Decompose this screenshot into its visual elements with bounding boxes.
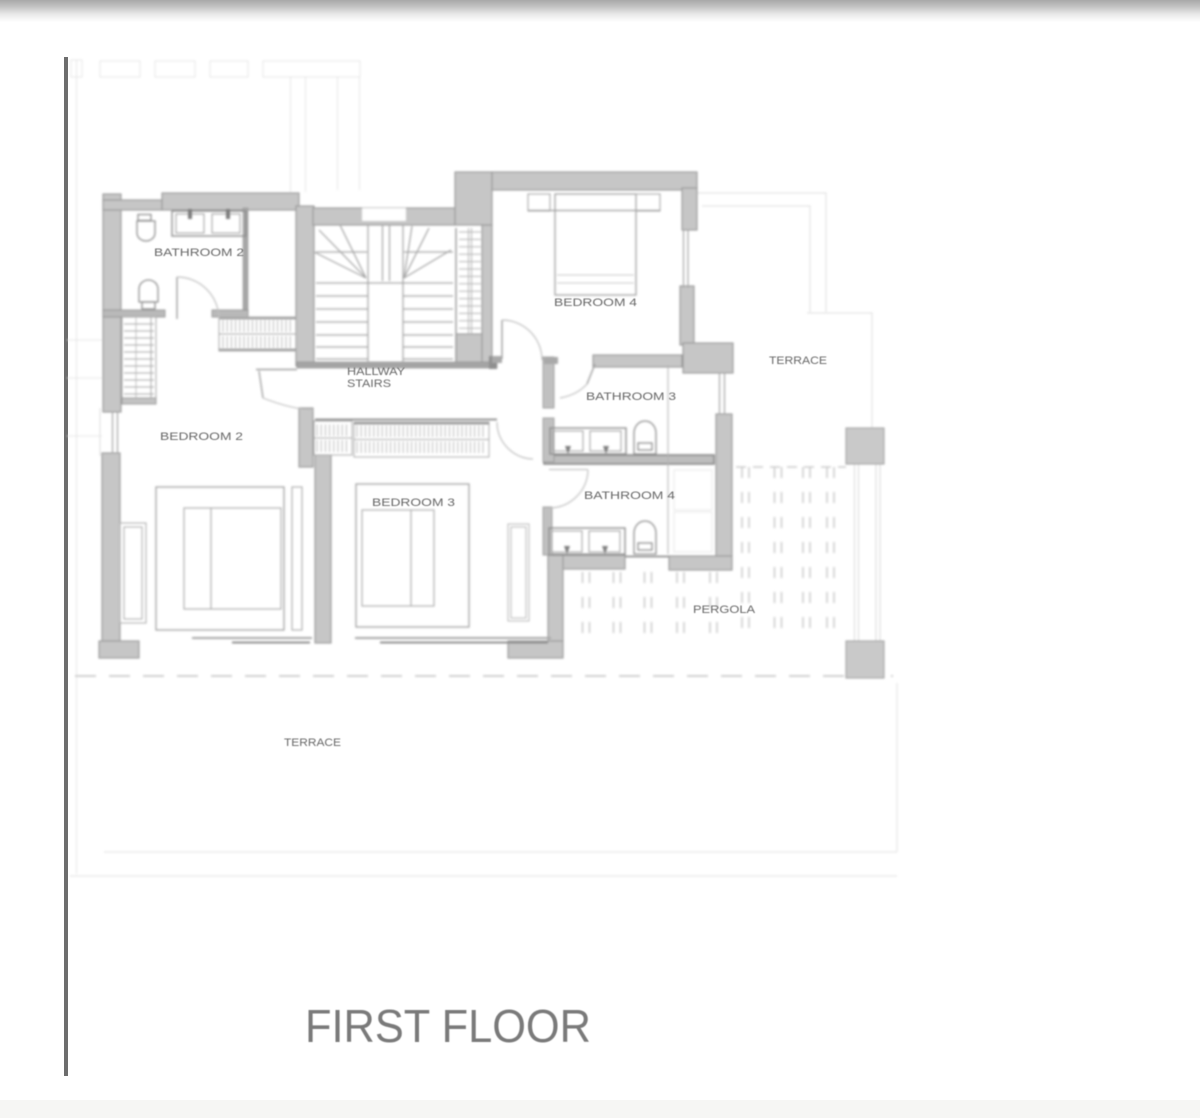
svg-text:BEDROOM 4: BEDROOM 4 <box>554 297 637 309</box>
svg-text:TERRACE: TERRACE <box>769 355 827 367</box>
svg-text:BATHROOM 4: BATHROOM 4 <box>584 490 675 502</box>
svg-text:BATHROOM 3: BATHROOM 3 <box>586 391 676 403</box>
svg-text:BEDROOM 3: BEDROOM 3 <box>372 497 455 509</box>
svg-text:BEDROOM 2: BEDROOM 2 <box>160 431 243 443</box>
svg-text:STAIRS: STAIRS <box>347 378 391 390</box>
svg-text:BATHROOM 2: BATHROOM 2 <box>154 247 244 259</box>
svg-text:TERRACE: TERRACE <box>284 737 341 749</box>
svg-text:PERGOLA: PERGOLA <box>693 604 756 616</box>
svg-text:HALLWAY: HALLWAY <box>347 366 406 378</box>
svg-text:FIRST FLOOR: FIRST FLOOR <box>305 1000 591 1052</box>
